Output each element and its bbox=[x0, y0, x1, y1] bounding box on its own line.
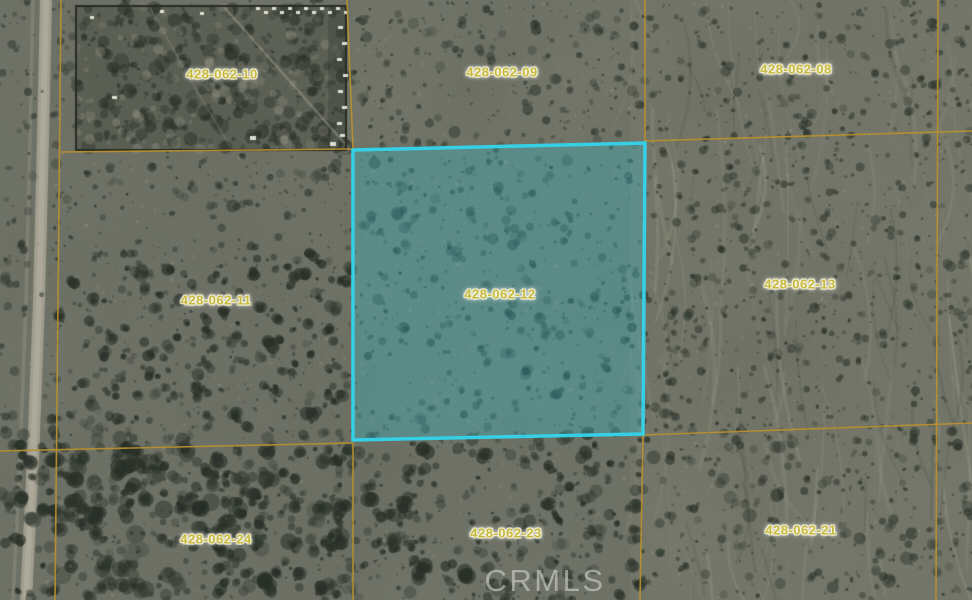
parcel-boundary-line bbox=[0, 443, 353, 451]
parcel-boundary-line bbox=[645, 131, 972, 141]
parcel-boundary-line bbox=[55, 0, 61, 600]
parcel-boundary-line bbox=[640, 435, 643, 600]
parcel-boundary-line bbox=[61, 149, 353, 152]
parcel-boundary-line bbox=[643, 423, 972, 435]
parcel-boundary-line bbox=[936, 0, 938, 600]
aerial-parcel-map-image: 428-062-10428-062-09428-062-08428-062-11… bbox=[0, 0, 972, 600]
crmls-watermark: CRMLS bbox=[484, 563, 605, 599]
parcel-boundaries-overlay bbox=[0, 0, 972, 600]
highlighted-parcel-outline bbox=[353, 143, 645, 440]
parcel-boundary-line bbox=[347, 0, 353, 149]
